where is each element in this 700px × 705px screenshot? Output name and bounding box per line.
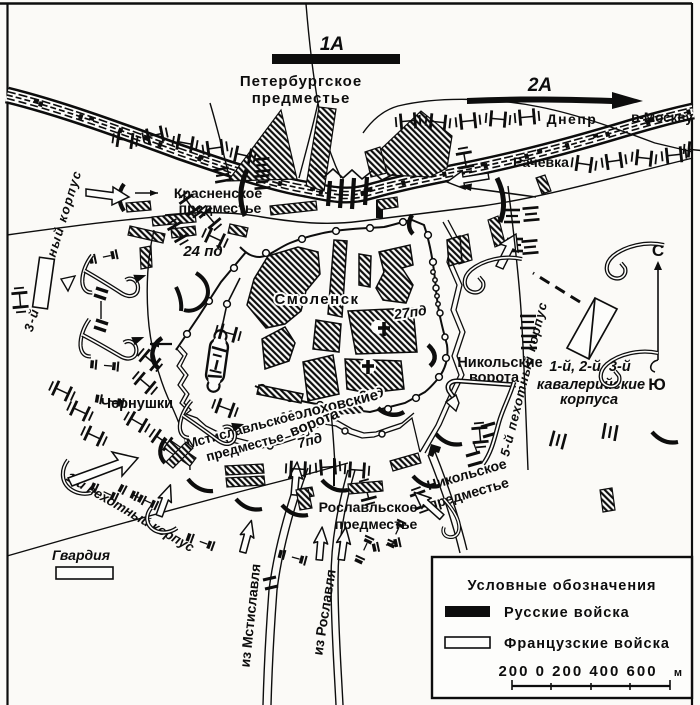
svg-text:Французские войска: Французские войска bbox=[504, 636, 670, 652]
svg-text:Петербургское: Петербургское bbox=[240, 73, 362, 90]
svg-text:Условные обозначения: Условные обозначения bbox=[468, 578, 657, 594]
svg-text:Днепр: Днепр bbox=[547, 111, 598, 127]
svg-text:в-Москву: в-Москву bbox=[631, 110, 693, 125]
svg-text:Рачевка: Рачевка bbox=[513, 154, 569, 170]
svg-text:1А: 1А bbox=[320, 34, 344, 55]
svg-text:Гвардия: Гвардия bbox=[52, 547, 110, 563]
svg-text:м: м bbox=[674, 667, 682, 679]
svg-text:Русские войска: Русские войска bbox=[504, 605, 630, 621]
svg-text:Рославльское: Рославльское bbox=[319, 499, 418, 515]
svg-text:корпуса: корпуса bbox=[560, 392, 618, 408]
svg-text:Чернушки: Чернушки bbox=[101, 396, 173, 412]
svg-text:Ю: Ю bbox=[648, 375, 666, 394]
svg-text:кавалерийские: кавалерийские bbox=[537, 377, 645, 393]
svg-text:2А: 2А bbox=[527, 75, 552, 96]
svg-text:Смоленск: Смоленск bbox=[274, 291, 359, 308]
svg-text:24 пд: 24 пд bbox=[182, 243, 222, 260]
svg-text:предместье: предместье bbox=[252, 90, 351, 107]
svg-text:200 0 200 400 600: 200 0 200 400 600 bbox=[498, 663, 657, 680]
